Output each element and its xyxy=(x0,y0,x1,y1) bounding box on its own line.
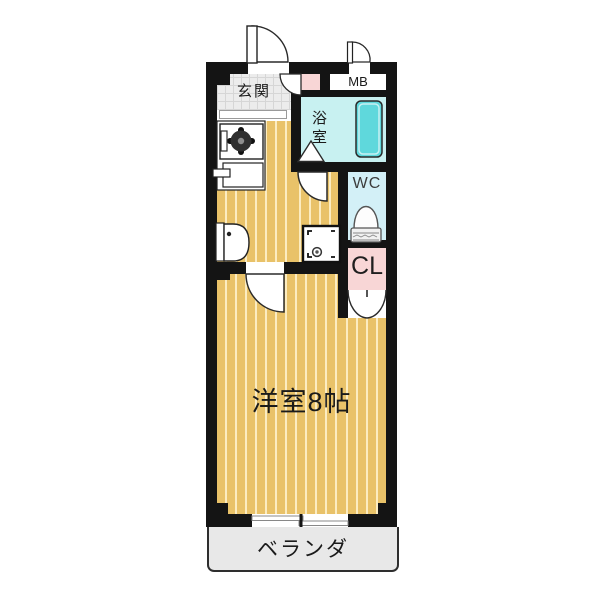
entrance-step-edge xyxy=(219,110,287,119)
entrance-label: 玄関 xyxy=(217,84,291,101)
wall-notch-bottom-right xyxy=(378,503,386,514)
entrance-doorway-gap xyxy=(248,62,289,74)
room-doorway-gap xyxy=(246,262,284,274)
main-room-label: 洋室8帖 xyxy=(217,388,386,418)
closet-door-area xyxy=(348,290,386,318)
mb-doorway-gap xyxy=(349,62,370,74)
wc-label: WC xyxy=(348,175,386,193)
wall-notch-mid-left xyxy=(217,262,230,280)
bathroom-label: 浴室 xyxy=(307,101,329,157)
kitchen-hall-floor xyxy=(217,121,291,262)
entrance-door-swing-icon xyxy=(247,26,288,63)
meter-box-label: MB xyxy=(330,74,386,90)
window-gap xyxy=(252,514,348,527)
pipe-space-box xyxy=(301,74,320,90)
wall-notch-bottom-left xyxy=(217,503,228,514)
mb-door-swing-icon xyxy=(348,42,371,63)
washroom-floor xyxy=(291,172,338,262)
floor-plan: 玄関 MB 浴室 WC CL 洋室8帖 ベランダ xyxy=(0,0,600,600)
veranda-label: ベランダ xyxy=(207,538,399,561)
closet-label: CL xyxy=(348,253,386,281)
